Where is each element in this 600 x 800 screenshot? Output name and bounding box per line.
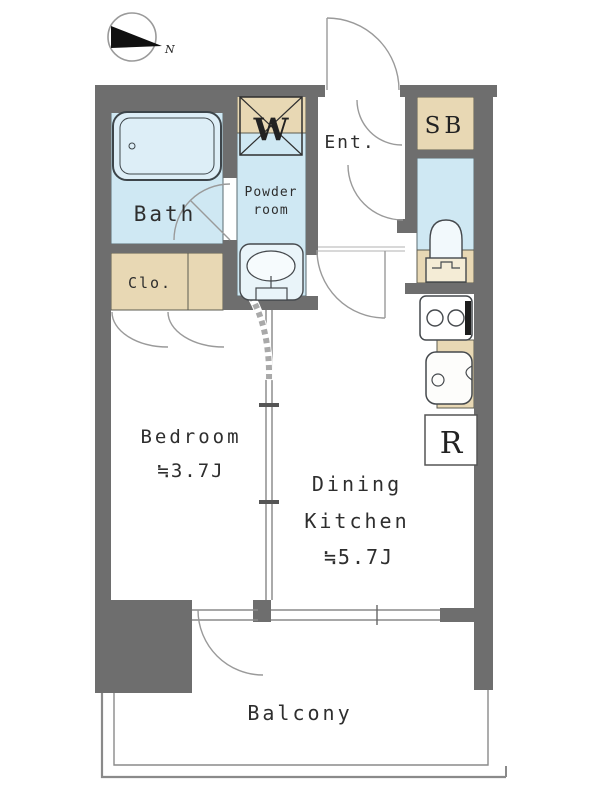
- shoe-box-label: SB: [425, 113, 466, 139]
- powder-label-1: Powder: [245, 185, 298, 200]
- dining-kitchen-size: ≒5.7J: [324, 545, 394, 569]
- dining-kitchen-label-2: Kitchen: [304, 509, 409, 533]
- refrigerator-label: R: [440, 426, 464, 461]
- windows: [192, 605, 440, 625]
- bedroom-label: Bedroom: [140, 426, 241, 448]
- bathtub-icon: [113, 112, 221, 180]
- north-compass-icon: N: [108, 13, 175, 61]
- bath-label: Bath: [134, 202, 197, 226]
- washer-label: W: [253, 112, 290, 148]
- washbasin-icon: [240, 244, 303, 300]
- powder-label-2: room: [253, 203, 288, 218]
- kitchen-sink-icon: [426, 352, 472, 404]
- floor-plan: N: [0, 0, 600, 800]
- compass-n-label: N: [164, 43, 175, 56]
- floor-plan-page: N: [0, 0, 600, 800]
- toilet-icon: [426, 220, 466, 282]
- entrance-label: Ent.: [324, 132, 375, 153]
- closet-label: Clo.: [128, 274, 172, 292]
- bedroom-size: ≒3.7J: [157, 460, 224, 482]
- stove-icon: [420, 296, 472, 340]
- balcony-label: Balcony: [247, 701, 352, 725]
- dining-kitchen-label-1: Dining: [312, 472, 402, 496]
